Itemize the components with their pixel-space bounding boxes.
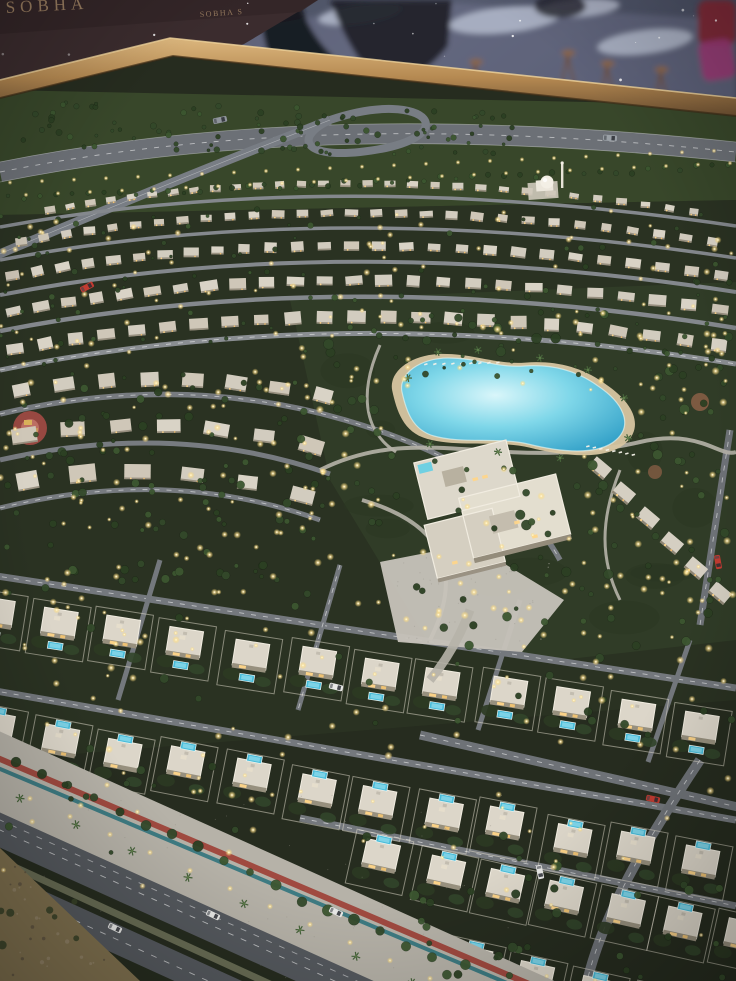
scale-model-photo: SOBHA SOBHA S [0, 0, 736, 981]
scale-model-svg: SOBHA SOBHA S [0, 0, 736, 981]
vignette-overlay [0, 0, 736, 981]
